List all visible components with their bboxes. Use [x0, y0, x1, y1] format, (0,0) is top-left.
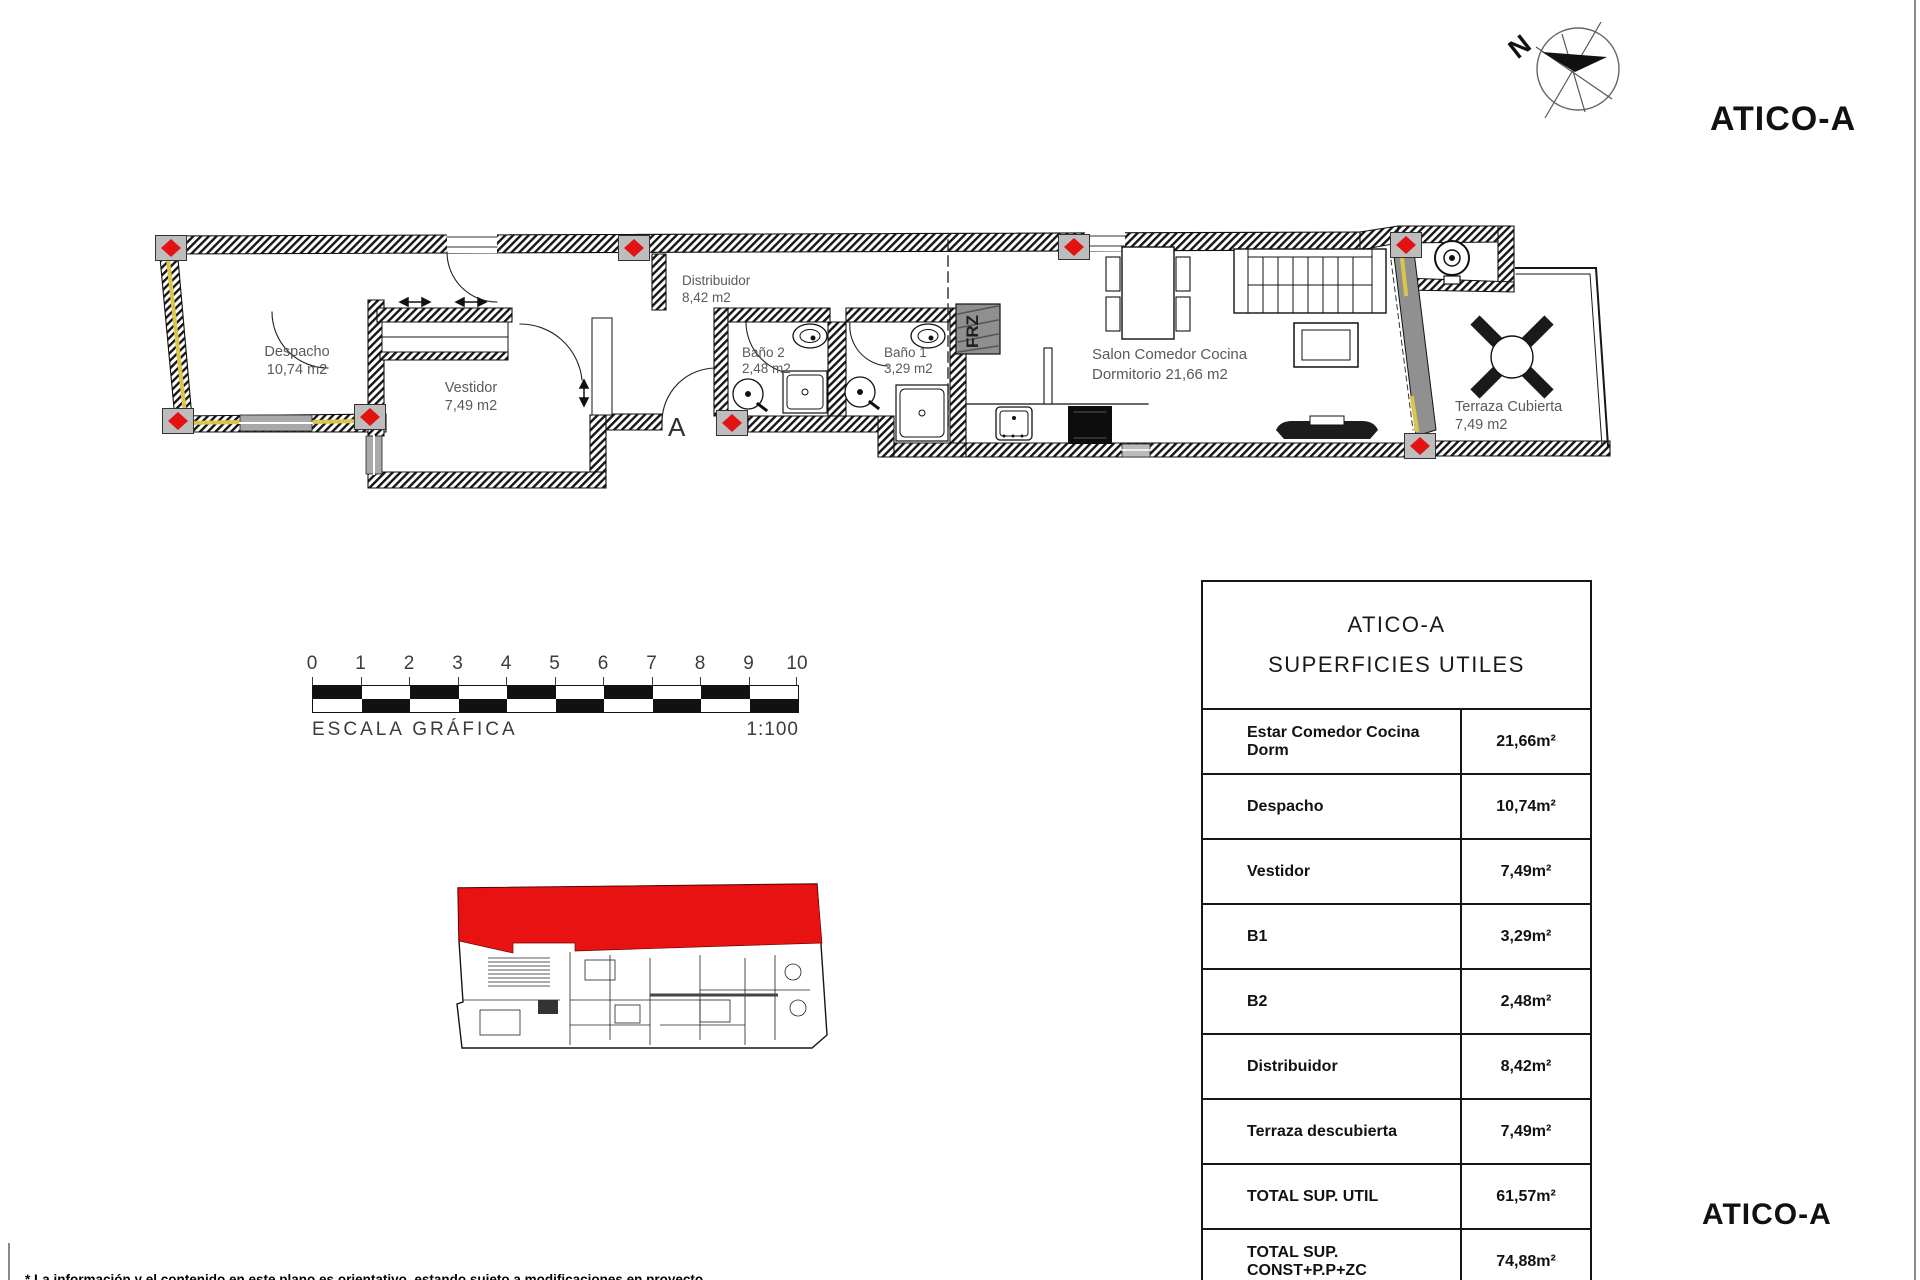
terrace-table [1470, 315, 1553, 398]
unit-highlight [458, 884, 822, 953]
scale-tick: 0 [299, 653, 325, 675]
row-label: TOTAL SUP. CONST+P.P+ZC [1203, 1230, 1460, 1280]
row-label: Despacho [1203, 775, 1460, 838]
plan-sheet: FRZ [0, 0, 1920, 1280]
surfaces-table-title: ATICO-A [1347, 612, 1445, 638]
row-label: B2 [1203, 970, 1460, 1033]
row-label: TOTAL SUP. UTIL [1203, 1165, 1460, 1228]
row-value: 7,49m² [1460, 1100, 1590, 1163]
table-row: Distribuidor 8,42m² [1203, 1033, 1590, 1098]
room-label-bano2: Baño 2 [742, 345, 785, 360]
svg-text:3,29 m2: 3,29 m2 [884, 361, 933, 376]
insulation-lines [167, 250, 358, 423]
scale-tick: 4 [493, 653, 519, 675]
surfaces-table: ATICO-A SUPERFICIES UTILES Estar Comedor… [1201, 580, 1592, 1280]
room-label-despacho: Despacho [264, 344, 329, 360]
room-label-vestidor: Vestidor [445, 380, 498, 396]
scale-tick: 6 [590, 653, 616, 675]
sheet-frame-left [8, 1243, 10, 1280]
key-plan [457, 884, 827, 1048]
scale-tick: 7 [639, 653, 665, 675]
floor-plan-drawing: FRZ [0, 0, 1920, 1280]
scale-bar [312, 685, 799, 713]
row-value: 21,66m² [1460, 710, 1590, 773]
row-value: 2,48m² [1460, 970, 1590, 1033]
scale-tick: 9 [736, 653, 762, 675]
table-row: TOTAL SUP. UTIL 61,57m² [1203, 1163, 1590, 1228]
room-label-distribuidor: Distribuidor [682, 273, 751, 288]
table-row: Terraza descubierta 7,49m² [1203, 1098, 1590, 1163]
row-value: 8,42m² [1460, 1035, 1590, 1098]
table-row: B2 2,48m² [1203, 968, 1590, 1033]
scale-tick: 1 [348, 653, 374, 675]
fridge-label: FRZ [963, 315, 982, 348]
svg-text:Dormitorio 21,66 m2: Dormitorio 21,66 m2 [1092, 366, 1228, 383]
disclaimer-note: * La información y el contenido en este … [25, 1272, 703, 1280]
table-row: Despacho 10,74m² [1203, 773, 1590, 838]
sheet-title-top: ATICO-A [1710, 100, 1856, 139]
salon-furniture [1106, 247, 1386, 439]
row-label: Terraza descubierta [1203, 1100, 1460, 1163]
surfaces-table-header: ATICO-A SUPERFICIES UTILES [1203, 582, 1590, 708]
row-value: 3,29m² [1460, 905, 1590, 968]
scale-tick: 10 [784, 653, 810, 675]
section-label: A [668, 412, 686, 442]
svg-text:7,49 m2: 7,49 m2 [1455, 417, 1507, 433]
row-value: 10,74m² [1460, 775, 1590, 838]
svg-text:10,74 m2: 10,74 m2 [267, 362, 327, 378]
north-label: N [1503, 29, 1537, 65]
row-value: 74,88m² [1460, 1230, 1590, 1280]
room-label-terraza: Terraza Cubierta [1455, 399, 1563, 415]
scale-tick: 5 [542, 653, 568, 675]
room-label-salon: Salon Comedor Cocina [1092, 346, 1248, 363]
scale-tick: 8 [687, 653, 713, 675]
apartment-plan: FRZ [156, 226, 1611, 488]
row-label: Estar Comedor Cocina Dorm [1203, 710, 1460, 773]
row-value: 7,49m² [1460, 840, 1590, 903]
scale-ratio: 1:100 [746, 719, 799, 741]
table-row: TOTAL SUP. CONST+P.P+ZC 74,88m² [1203, 1228, 1590, 1280]
row-label: B1 [1203, 905, 1460, 968]
svg-text:8,42 m2: 8,42 m2 [682, 290, 731, 305]
scale-tick: 3 [445, 653, 471, 675]
row-value: 61,57m² [1460, 1165, 1590, 1228]
north-arrow-icon: N [1503, 22, 1619, 118]
heater [1435, 241, 1469, 284]
table-row: Vestidor 7,49m² [1203, 838, 1590, 903]
svg-text:7,49 m2: 7,49 m2 [445, 398, 497, 414]
surfaces-table-subtitle: SUPERFICIES UTILES [1268, 652, 1525, 678]
sheet-title-bottom: ATICO-A [1702, 1198, 1832, 1232]
row-label: Vestidor [1203, 840, 1460, 903]
scale-caption: ESCALA GRÁFICA [312, 719, 518, 741]
table-row: B1 3,29m² [1203, 903, 1590, 968]
row-label: Distribuidor [1203, 1035, 1460, 1098]
scale-tick: 2 [396, 653, 422, 675]
svg-text:2,48 m2: 2,48 m2 [742, 361, 791, 376]
graphic-scale: 0 1 2 3 4 5 6 7 8 9 10 ESCALA GRÁFICA 1:… [312, 653, 799, 745]
room-label-bano1: Baño 1 [884, 345, 927, 360]
sheet-frame-right [1914, 0, 1916, 1280]
table-row: Estar Comedor Cocina Dorm 21,66m² [1203, 708, 1590, 773]
